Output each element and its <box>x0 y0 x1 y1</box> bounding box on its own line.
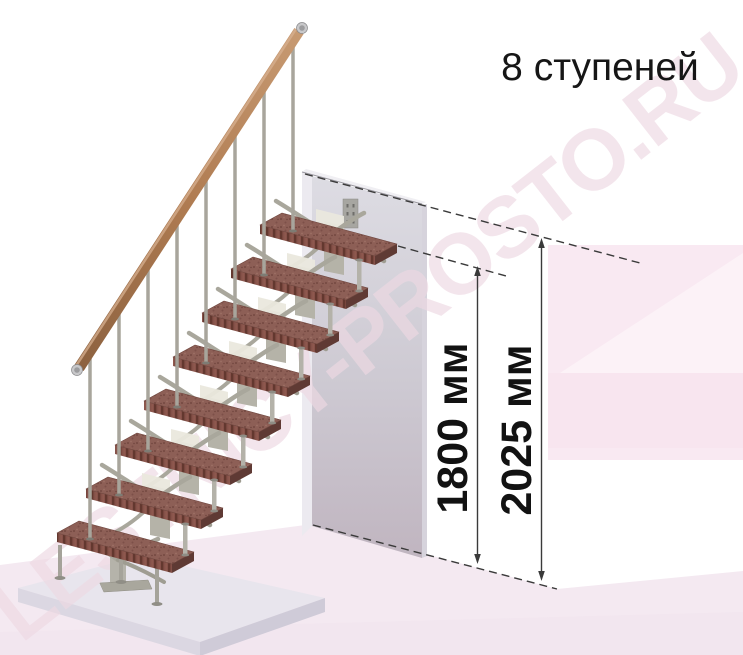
dimension-label-1800: 1800 мм <box>429 342 477 513</box>
background-right-wall-band <box>548 373 743 448</box>
staircase-illustration: LESTNICY-PROSTO.RU <box>0 0 743 655</box>
page-title: 8 ступеней <box>501 46 699 89</box>
dimension-label-2025: 2025 мм <box>493 344 541 515</box>
staircase-diagram: LESTNICY-PROSTO.RU <box>0 0 743 655</box>
